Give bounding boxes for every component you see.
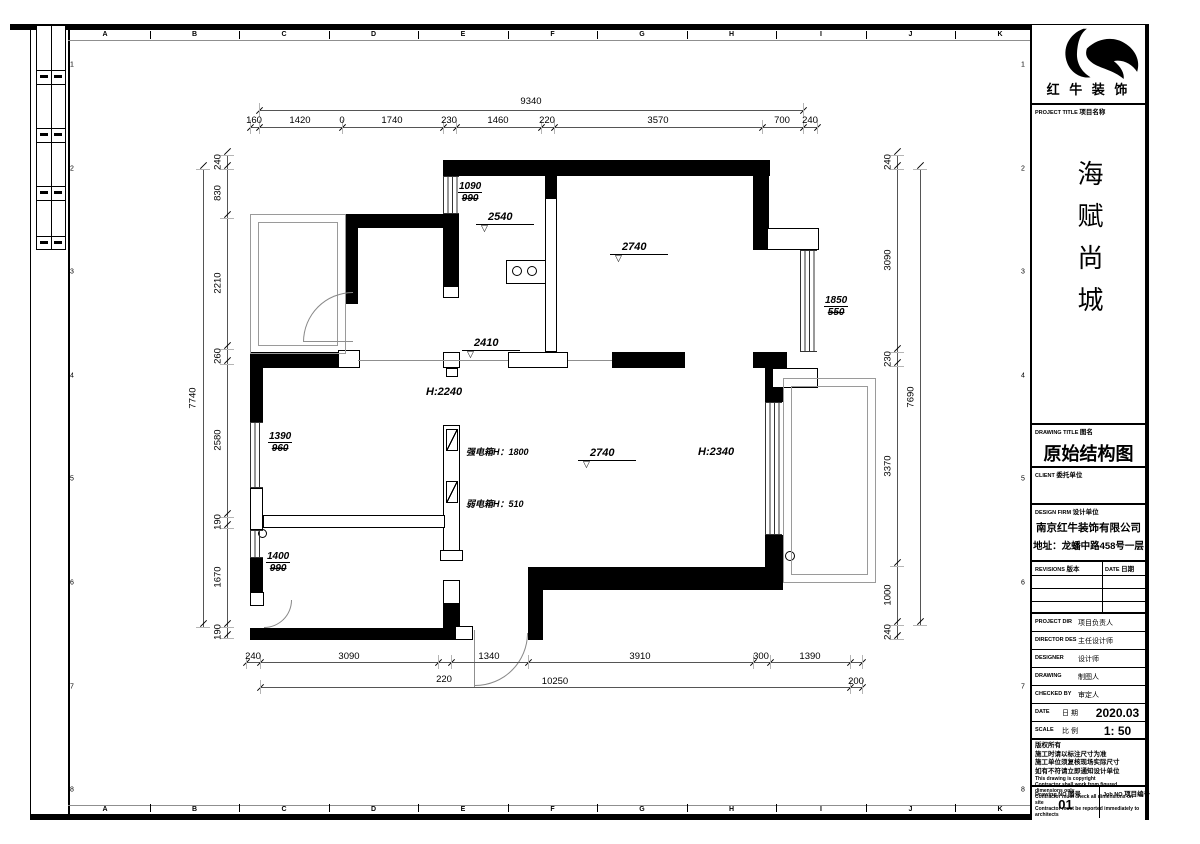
window-balcony-door (765, 402, 782, 535)
signature-table-line (36, 186, 66, 187)
ruler-number-left: 8 (70, 787, 74, 794)
note-line: 版权所有 (1035, 742, 1142, 751)
design-firm-label: DESIGN FIRM 设计单位 (1035, 506, 1099, 516)
ruler-number-right: 5 (1021, 476, 1025, 483)
dim-extension (260, 680, 261, 694)
field-row-checked-by: CHECKED BY 审定人 (1032, 686, 1145, 704)
weak-electric-panel (446, 481, 458, 503)
ruler-tick (239, 31, 240, 39)
dim-tick (916, 161, 923, 168)
field-en: DIRECTOR DES (1035, 637, 1076, 643)
dim-extension (762, 120, 763, 134)
label-cn: 项目编号 (1124, 791, 1150, 798)
window-width: 1390 (268, 431, 292, 443)
wall-kitchen-left (443, 214, 459, 286)
window-size-left-upper: 1390 960 (268, 431, 292, 454)
field-row-date: DATE 日 期 2020.03 (1032, 704, 1145, 722)
dim-tick (223, 161, 230, 168)
door-arc-bedroom3 (264, 600, 292, 628)
field-row-director: DIRECTOR DES 主任设计师 (1032, 632, 1145, 650)
dim-tick (223, 619, 230, 626)
wall-mid-band-left (250, 352, 340, 368)
drawing-sheet: 2540 ▽ 2740 ▽ 2410 ▽ 2740 ▽ H:2240 H:234… (0, 0, 1200, 844)
dim-label: 1390 (799, 651, 820, 662)
ruler-number-left: 1 (70, 62, 74, 69)
dim-tick (223, 630, 230, 637)
level-marker-bedroom2: 2740 ▽ (610, 242, 672, 262)
dim-extension (850, 655, 851, 669)
dim-label: 830 (213, 185, 224, 201)
label-en: CLIENT (1035, 473, 1055, 479)
field-en: DATE (1035, 709, 1050, 715)
window-bay (800, 250, 817, 352)
dim-chain-right-overall (920, 169, 921, 625)
wall-kitchen-left-stub (443, 286, 459, 298)
ruler-number-right: 8 (1021, 787, 1025, 794)
ruler-tick (866, 31, 867, 39)
dim-extension (220, 218, 234, 219)
title-block: 红 牛 装 饰 PROJECT TITLE 项目名称 海赋尚城 DRAWING … (1030, 25, 1147, 820)
bull-logo (1032, 27, 1149, 79)
sink-basin-right (527, 266, 537, 276)
label-en: DATE (1105, 567, 1120, 573)
ruler-tick (418, 31, 419, 39)
ruler-letter-bottom: D (371, 806, 376, 813)
height-label-balcony-door: H:2340 (698, 446, 734, 458)
dim-label: 7740 (188, 387, 199, 408)
dim-label: 3910 (629, 651, 650, 662)
wall-kitchen-right-top (545, 176, 557, 198)
ruler-tick (508, 31, 509, 39)
client-label: CLIENT 委托单位 (1035, 469, 1082, 479)
note-line: 如有不符请立即通知设计单位 (1035, 768, 1142, 777)
dim-label: 200 (848, 676, 864, 687)
ruler-letter-top: C (281, 31, 286, 38)
drawing-title-label: DRAWING TITLE 图名 (1035, 426, 1093, 436)
label-cn: 版本 (1066, 566, 1079, 573)
dim-label: 230 (441, 115, 457, 126)
window-sill: 960 (268, 443, 292, 454)
label-en: Job NO (1103, 792, 1123, 798)
field-en: PROJECT DIR (1035, 619, 1072, 625)
dim-extension (913, 169, 927, 170)
field-value: 2020.03 (1092, 706, 1143, 720)
bay-window-frame-top (767, 228, 819, 250)
label-en: DRAWING TITLE (1035, 430, 1078, 436)
dim-label: 1740 (381, 115, 402, 126)
ruler-letter-bottom: H (729, 806, 734, 813)
field-cn: 项目负责人 (1078, 618, 1113, 628)
wall-top (443, 160, 770, 176)
signature-text-mark (54, 133, 62, 136)
title-block-revisions-section: REVISIONS 版本 DATE 日期 (1032, 562, 1145, 614)
ruler-letter-top: D (371, 31, 376, 38)
dim-label: 2210 (213, 272, 224, 293)
signature-table-line (36, 236, 66, 237)
ruler-letter-bottom: E (461, 806, 466, 813)
dim-label: 240 (883, 154, 894, 170)
drawing-no-label: Drawing NO 图号 (1035, 788, 1081, 798)
label-en: PROJECT TITLE (1035, 110, 1078, 116)
field-value: 1: 50 (1092, 724, 1143, 738)
dim-label: 1670 (213, 566, 224, 587)
dim-tick (223, 520, 230, 527)
label-en: Drawing NO (1035, 792, 1066, 798)
dim-extension (528, 655, 529, 669)
partition-horizontal (263, 515, 445, 528)
dim-label: 220 (539, 115, 555, 126)
dim-tick (223, 210, 230, 217)
ruler-letter-bottom: C (281, 806, 286, 813)
dim-extension (438, 655, 439, 669)
wall-bottom-stub-top (443, 580, 460, 604)
dim-label: 7690 (906, 386, 917, 407)
label-cn: 日期 (1121, 566, 1134, 573)
field-row-designer: DESIGNER 设计师 (1032, 650, 1145, 668)
title-block-logo-section: 红 牛 装 饰 (1032, 25, 1145, 105)
job-no-box: Job NO 项目编号 (1100, 787, 1145, 818)
wall-face-line (568, 360, 612, 361)
dim-label: 2580 (213, 429, 224, 450)
dim-chain-left-overall (203, 169, 204, 627)
dim-chain-left (227, 155, 228, 638)
ruler-tick (150, 31, 151, 39)
level-triangle-icon: ▽ (467, 351, 524, 358)
drawing-title: 原始结构图 (1032, 440, 1145, 466)
drawing-no-box: Drawing NO 图号 01 (1032, 787, 1100, 818)
wall-right-column-bottom (765, 535, 783, 590)
window-left-lower (250, 530, 263, 558)
signature-text-mark (40, 191, 48, 194)
revisions-label: REVISIONS 版本 (1035, 563, 1079, 573)
revisions-date-label: DATE 日期 (1105, 563, 1134, 573)
signature-text-mark (40, 241, 48, 244)
dim-tick (199, 619, 206, 626)
dim-extension (770, 655, 771, 669)
field-cn: 比 例 (1062, 726, 1078, 736)
field-row-drawing: DRAWING 制图人 (1032, 668, 1145, 686)
dim-label: 3090 (883, 249, 894, 270)
window-size-left-lower: 1400 990 (266, 551, 290, 574)
window-size-bay: 1850 550 (824, 295, 848, 318)
window-width: 1090 (458, 181, 482, 193)
strong-electric-label: 强电箱H：1800 (466, 445, 529, 458)
ruler-number-left: 3 (70, 269, 74, 276)
ruler-number-left: 4 (70, 372, 74, 379)
ruler-tick (687, 804, 688, 812)
dim-label: 220 (436, 674, 452, 685)
dim-label: 190 (213, 514, 224, 530)
level-marker-kitchen: 2540 ▽ (476, 212, 538, 232)
revisions-row-line (1032, 588, 1147, 589)
dim-tick (916, 617, 923, 624)
field-en: DESIGNER (1035, 655, 1064, 661)
field-row-scale: SCALE 比 例 1: 50 (1032, 722, 1145, 740)
dim-tick (893, 344, 900, 351)
level-triangle-icon: ▽ (615, 255, 672, 262)
strong-electric-panel (446, 429, 458, 451)
wall-face-line (358, 360, 508, 361)
ruler-tick (508, 804, 509, 812)
window-width: 1400 (266, 551, 290, 563)
dim-tick (893, 147, 900, 154)
window-size-kitchen: 1090 990 (458, 181, 482, 204)
wall-kitchen-right (545, 198, 557, 352)
dim-chain-top-overall (259, 110, 803, 111)
door-hinge-block (250, 592, 264, 606)
frame-right-border (1147, 24, 1149, 820)
dim-label: 10250 (542, 676, 568, 687)
dim-label: 1340 (478, 651, 499, 662)
ruler-tick (329, 804, 330, 812)
ruler-letter-bottom: F (550, 806, 554, 813)
ruler-number-right: 3 (1021, 269, 1025, 276)
dim-label: 1420 (289, 115, 310, 126)
dim-label: 3370 (883, 455, 894, 476)
ruler-number-right: 2 (1021, 165, 1025, 172)
ruler-letter-top: G (639, 31, 644, 38)
design-firm-name: 南京红牛装饰有限公司 (1032, 520, 1145, 535)
dim-chain-bottom-overall (260, 687, 862, 688)
ruler-number-right: 6 (1021, 580, 1025, 587)
dim-label: 190 (213, 624, 224, 640)
wall-bottom-corner (455, 626, 473, 640)
dim-label: 240 (802, 115, 818, 126)
dim-tick (223, 147, 230, 154)
dim-tick (893, 358, 900, 365)
ruler-letter-top: A (102, 31, 107, 38)
note-line: 施工时请以标注尺寸为准 (1035, 751, 1142, 760)
title-block-firm-section: DESIGN FIRM 设计单位 南京红牛装饰有限公司 地址：龙蟠中路458号一… (1032, 505, 1145, 562)
ruler-letter-top: J (909, 31, 913, 38)
dim-label: 9340 (520, 96, 541, 107)
dim-extension (220, 364, 234, 365)
signature-table-line (36, 142, 66, 143)
signature-table-line (36, 200, 66, 201)
signature-table-line (36, 128, 66, 129)
level-value: 2540 (488, 212, 538, 223)
ruler-letter-bottom: B (192, 806, 197, 813)
sink-basin-left (512, 266, 522, 276)
label-cn: 图号 (1068, 791, 1081, 798)
revisions-row-line (1032, 575, 1147, 576)
dim-tick (893, 558, 900, 565)
level-marker-hall: 2410 ▽ (462, 338, 524, 358)
signature-table-line (36, 84, 66, 85)
signature-text-mark (54, 241, 62, 244)
signature-text-mark (54, 191, 62, 194)
title-block-numbers: Drawing NO 图号 01 Job NO 项目编号 (1032, 787, 1145, 818)
field-cn: 设计师 (1078, 654, 1099, 664)
signature-text-mark (40, 133, 48, 136)
field-cn: 主任设计师 (1078, 636, 1113, 646)
level-value: 2740 (622, 242, 672, 253)
wall-step-vertical (528, 590, 543, 640)
level-value: 2410 (474, 338, 524, 349)
ruler-letter-bottom: A (102, 806, 107, 813)
wall-mid-band-center (612, 352, 685, 368)
ruler-letter-bottom: I (820, 806, 822, 813)
dim-label: 240 (245, 651, 261, 662)
project-name: 海赋尚城 (1070, 160, 1107, 328)
ruler-letter-top: B (192, 31, 197, 38)
level-triangle-icon: ▽ (583, 461, 640, 468)
field-cn: 日 期 (1062, 708, 1078, 718)
ruler-bottom-line (68, 805, 1030, 806)
window-sill: 990 (458, 193, 482, 204)
dim-label: 300 (753, 651, 769, 662)
door-leaf-bedroom1 (303, 341, 353, 342)
window-width: 1850 (824, 295, 848, 307)
dim-label: 700 (774, 115, 790, 126)
dim-tick (223, 509, 230, 516)
dim-label: 1000 (883, 584, 894, 605)
wall-left-lower (250, 558, 263, 594)
ruler-letter-top: K (997, 31, 1002, 38)
label-cn: 委托单位 (1056, 472, 1082, 479)
label-en: REVISIONS (1035, 567, 1065, 573)
ruler-top-line (68, 40, 1030, 41)
dim-tick (199, 161, 206, 168)
dim-chain-right (897, 155, 898, 639)
label-cn: 图名 (1080, 429, 1093, 436)
height-label-hall: H:2240 (426, 386, 462, 398)
dim-tick (893, 161, 900, 168)
window-kitchen (443, 176, 459, 214)
title-block-fields: PROJECT DIR 项目负责人 DIRECTOR DES 主任设计师 DES… (1032, 614, 1145, 740)
ruler-number-left: 7 (70, 683, 74, 690)
frame-left-border (68, 24, 70, 820)
wall-left-infill (250, 488, 263, 530)
dim-extension (913, 625, 927, 626)
door-leaf-entry (474, 630, 475, 688)
dim-label: 260 (213, 348, 224, 364)
field-en: DRAWING (1035, 673, 1062, 679)
project-title-label: PROJECT TITLE 项目名称 (1035, 106, 1105, 116)
ruler-tick (776, 31, 777, 39)
dim-label: 160 (246, 115, 262, 126)
signature-text-mark (54, 75, 62, 78)
dim-label: 230 (883, 351, 894, 367)
label-cn: 设计单位 (1073, 509, 1099, 516)
ruler-number-right: 7 (1021, 683, 1025, 690)
ruler-letter-top: I (820, 31, 822, 38)
ruler-letter-top: E (461, 31, 466, 38)
dim-tick (223, 356, 230, 363)
signature-text-mark (40, 75, 48, 78)
window-sill: 990 (266, 563, 290, 574)
signature-table-divider (51, 25, 52, 250)
field-en: SCALE (1035, 727, 1054, 733)
dim-label: 3570 (647, 115, 668, 126)
level-triangle-icon: ▽ (481, 225, 538, 232)
ruler-tick (150, 804, 151, 812)
dim-tick (893, 617, 900, 624)
window-left-upper (250, 422, 263, 488)
dim-chain-bottom (246, 662, 862, 663)
dim-chain-top (250, 127, 817, 128)
label-en: DESIGN FIRM (1035, 510, 1071, 516)
title-block-client-section: CLIENT 委托单位 (1032, 468, 1145, 505)
frame-bottom-bar (30, 814, 1149, 820)
ruler-tick (687, 31, 688, 39)
job-no-label: Job NO 项目编号 (1103, 788, 1150, 798)
field-cn: 制图人 (1078, 672, 1099, 682)
ruler-letter-bottom: G (639, 806, 644, 813)
wall-bedroom1-top (345, 214, 445, 228)
field-row-project-dir: PROJECT DIR 项目负责人 (1032, 614, 1145, 632)
dim-label: 240 (883, 624, 894, 640)
ruler-tick (597, 804, 598, 812)
ruler-tick (866, 804, 867, 812)
wall-left-upper (250, 368, 263, 422)
ruler-number-right: 1 (1021, 62, 1025, 69)
dim-label: 240 (213, 154, 224, 170)
weak-electric-label: 弱电箱H：510 (466, 497, 524, 510)
field-en: CHECKED BY (1035, 691, 1071, 697)
window-sill: 550 (824, 307, 848, 318)
title-block-drawing-title-section: DRAWING TITLE 图名 原始结构图 (1032, 425, 1145, 468)
dim-extension (451, 655, 452, 669)
design-firm-address: 地址：龙蟠中路458号一层 (1032, 538, 1145, 552)
dim-extension (890, 566, 904, 567)
ruler-number-left: 6 (70, 580, 74, 587)
ruler-tick (329, 31, 330, 39)
dim-label: 1460 (487, 115, 508, 126)
ruler-tick (955, 31, 956, 39)
balcony-right-inner (791, 386, 868, 575)
ruler-tick (955, 804, 956, 812)
drawing-no-value: 01 (1032, 797, 1099, 812)
ruler-number-left: 5 (70, 476, 74, 483)
dim-tick (893, 631, 900, 638)
ruler-number-right: 4 (1021, 372, 1025, 379)
title-block-project-section: PROJECT TITLE 项目名称 海赋尚城 (1032, 105, 1145, 425)
signature-table-line (36, 70, 66, 71)
dim-extension (196, 169, 210, 170)
ruler-letter-bottom: J (909, 806, 913, 813)
ruler-tick (776, 804, 777, 812)
ruler-tick (597, 31, 598, 39)
field-cn: 审定人 (1078, 690, 1099, 700)
ruler-number-left: 2 (70, 165, 74, 172)
dim-label: 0 (339, 115, 344, 126)
frame-top-bar (10, 24, 1149, 30)
level-marker-living: 2740 ▽ (578, 448, 640, 468)
brand-name: 红 牛 装 饰 (1032, 79, 1145, 98)
level-value: 2740 (590, 448, 640, 459)
partition-foot (440, 550, 463, 561)
dim-extension (862, 655, 863, 669)
ruler-letter-bottom: K (997, 806, 1002, 813)
ruler-letter-top: F (550, 31, 554, 38)
wall-band-stub-foot (446, 368, 458, 377)
dim-tick (223, 341, 230, 348)
ruler-tick (418, 804, 419, 812)
wall-bottom-right (528, 567, 783, 590)
dim-extension (196, 627, 210, 628)
wall-bottom-left (250, 628, 455, 640)
dim-label: 3090 (338, 651, 359, 662)
revisions-row-line (1032, 601, 1147, 602)
frame-left-outer-line (30, 24, 31, 820)
note-line: 施工单位须复核现场实际尺寸 (1035, 759, 1142, 768)
ruler-tick (239, 804, 240, 812)
label-cn: 项目名称 (1079, 109, 1105, 116)
ruler-letter-top: H (729, 31, 734, 38)
title-block-notes: 版权所有 施工时请以标注尺寸为准 施工单位须复核现场实际尺寸 如有不符请立即通知… (1032, 740, 1145, 787)
